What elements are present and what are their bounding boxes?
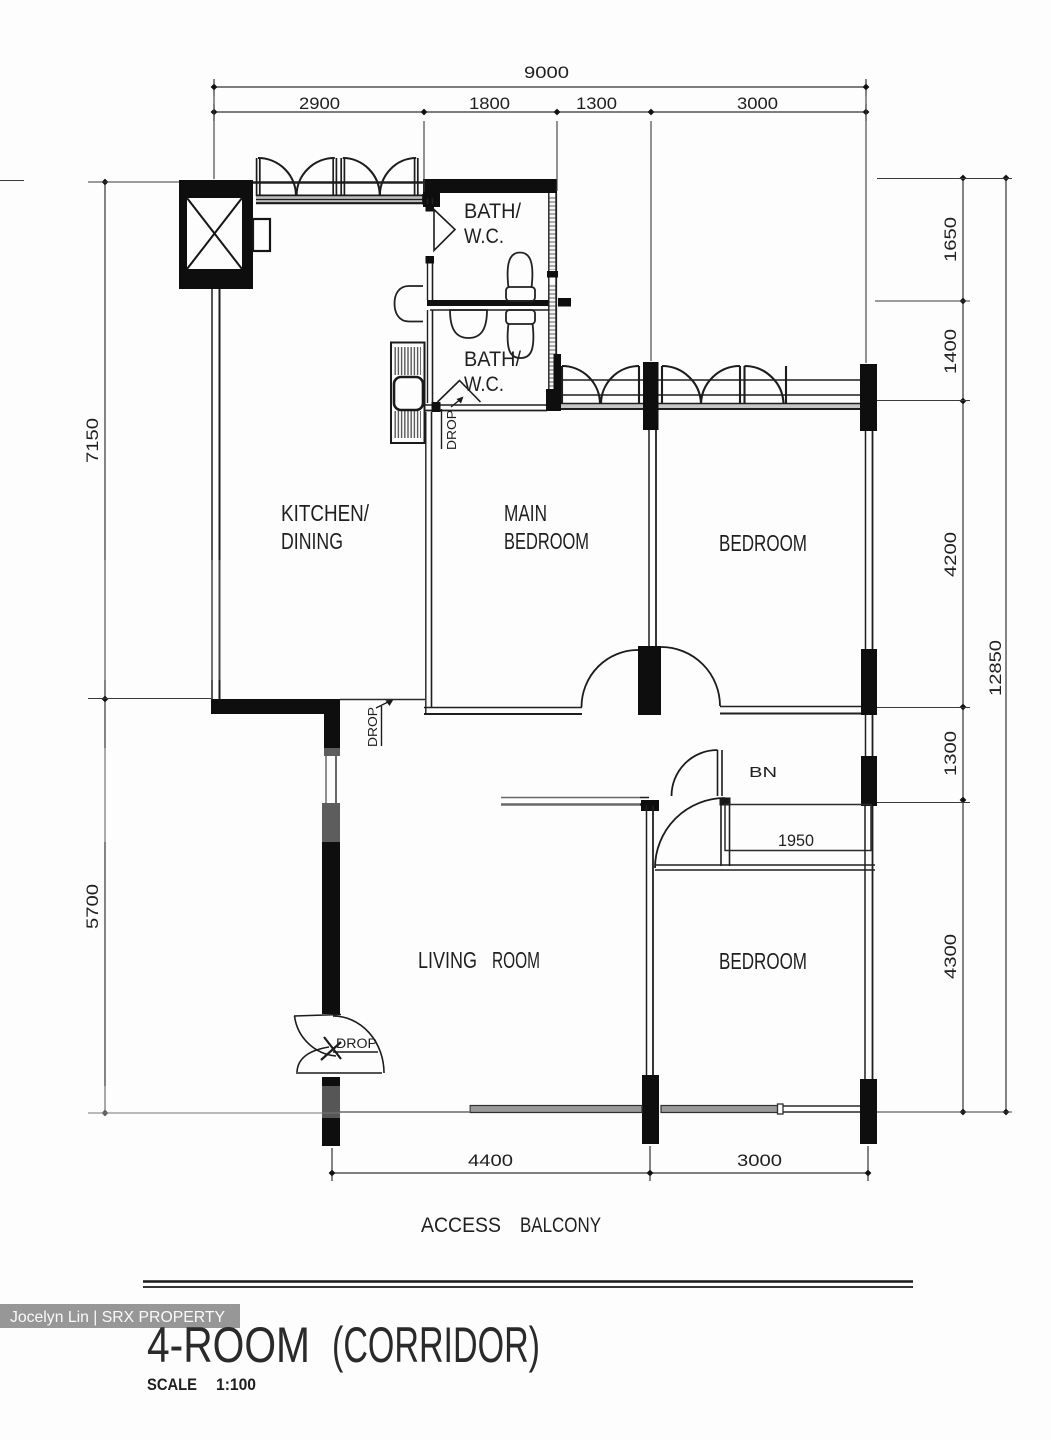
svg-text:BALCONY: BALCONY [520,1214,601,1237]
svg-text:KITCHEN/: KITCHEN/ [281,500,369,526]
svg-text:BEDROOM: BEDROOM [504,528,589,554]
svg-text:LIVING: LIVING [418,947,477,973]
svg-text:1300: 1300 [941,731,960,776]
svg-text:BN: BN [749,764,777,781]
svg-text:5700: 5700 [83,884,102,929]
svg-text:1:100: 1:100 [216,1375,256,1394]
svg-text:SCALE: SCALE [147,1375,197,1394]
svg-text:4-ROOM: 4-ROOM [147,1317,310,1373]
svg-text:W.C.: W.C. [464,225,504,248]
svg-text:BATH/: BATH/ [464,200,521,223]
svg-text:4400: 4400 [468,1151,513,1170]
svg-text:BEDROOM: BEDROOM [719,948,807,974]
svg-text:2900: 2900 [299,94,340,113]
svg-text:1800: 1800 [469,94,510,113]
svg-text:7150: 7150 [83,418,102,463]
svg-text:BEDROOM: BEDROOM [719,530,807,556]
svg-text:DROP: DROP [336,1036,377,1051]
svg-text:3000: 3000 [737,94,778,113]
svg-text:DROP: DROP [365,707,380,747]
svg-text:BATH/: BATH/ [464,348,521,371]
svg-text:MAIN: MAIN [504,500,547,526]
svg-text:1400: 1400 [941,329,960,374]
svg-text:ACCESS: ACCESS [421,1214,501,1237]
svg-text:(CORRIDOR): (CORRIDOR) [332,1317,540,1373]
svg-text:1650: 1650 [941,217,960,262]
svg-text:DINING: DINING [281,528,343,554]
svg-text:3000: 3000 [737,1151,782,1170]
svg-text:1950: 1950 [778,831,814,850]
svg-text:ROOM: ROOM [492,947,540,973]
svg-text:W.C.: W.C. [464,373,504,396]
svg-text:9000: 9000 [524,63,569,82]
svg-text:1300: 1300 [576,94,617,113]
svg-text:12850: 12850 [986,640,1005,696]
svg-text:4200: 4200 [941,532,960,577]
svg-text:DROP: DROP [444,410,459,450]
svg-text:4300: 4300 [941,934,960,979]
